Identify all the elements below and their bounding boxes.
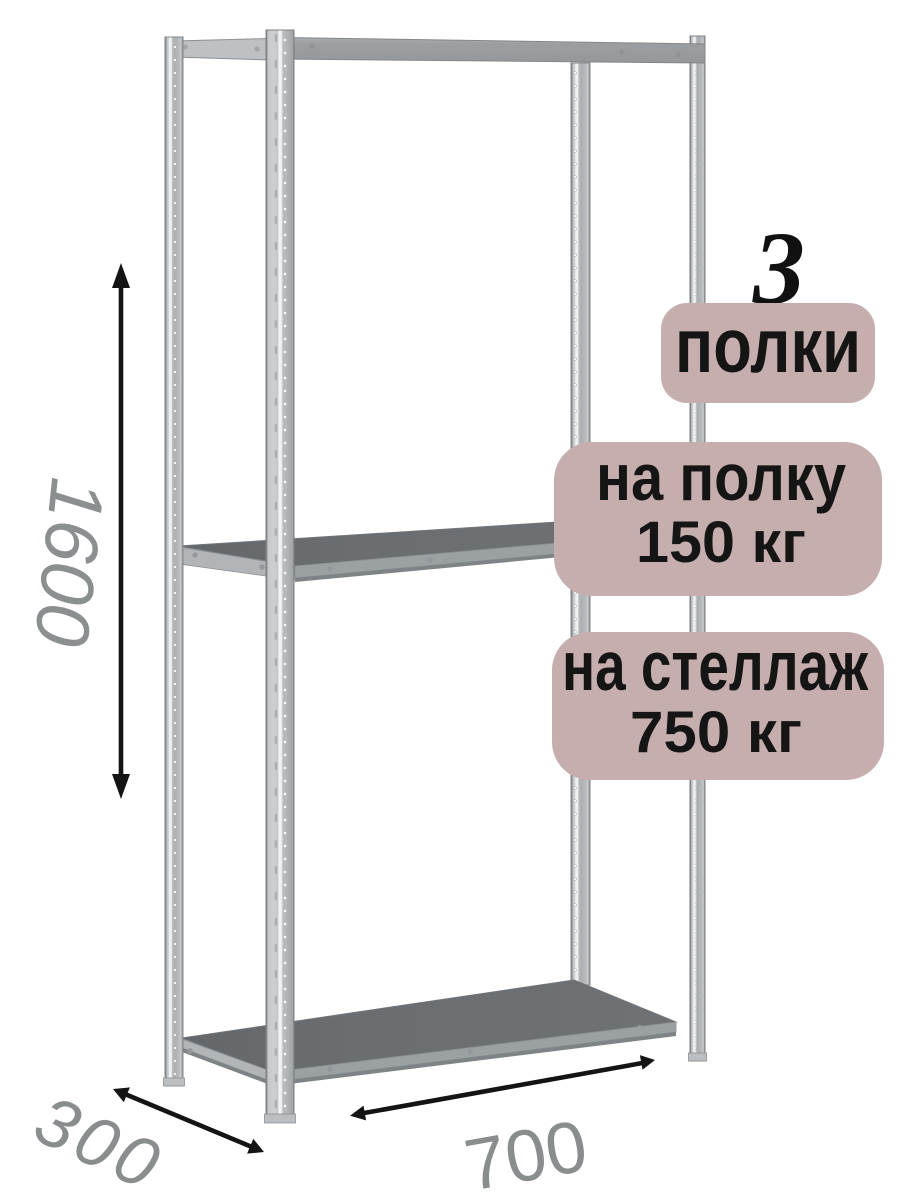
svg-text:150 кг: 150 кг	[636, 510, 806, 575]
svg-text:на стеллаж: на стеллаж	[562, 627, 869, 705]
svg-text:на полку: на полку	[596, 440, 846, 514]
svg-text:1600: 1600	[18, 474, 120, 650]
svg-text:750 кг: 750 кг	[630, 700, 802, 765]
svg-text:полки: полки	[675, 303, 861, 389]
